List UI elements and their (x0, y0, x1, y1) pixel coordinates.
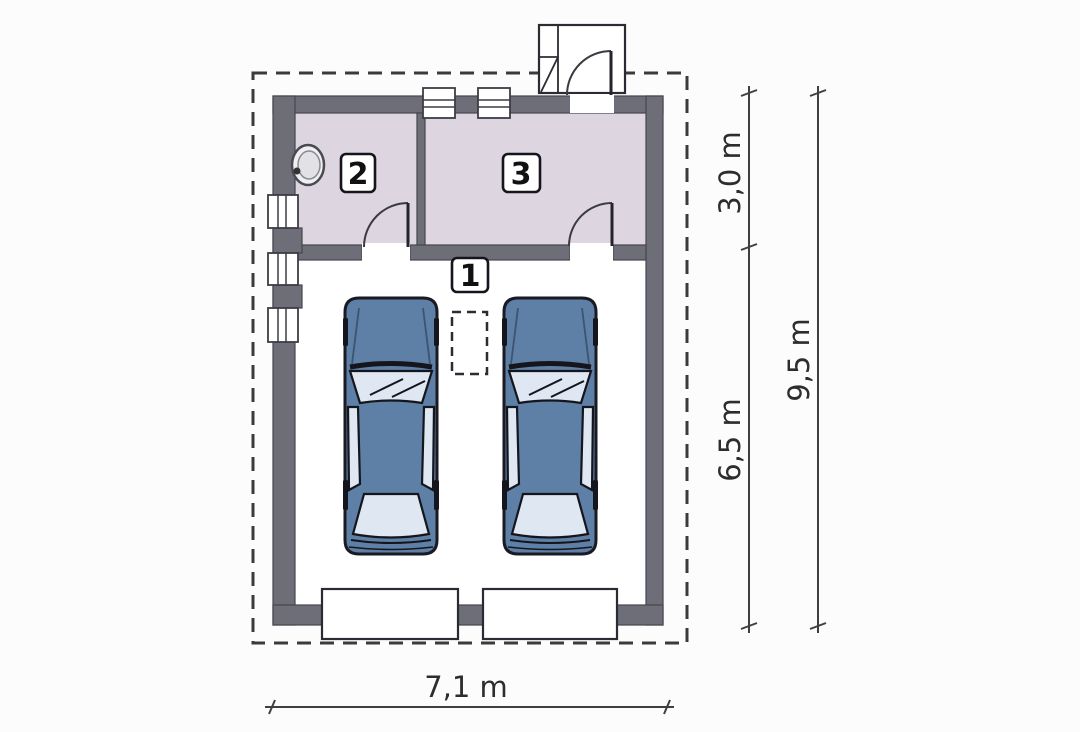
window-left-1 (268, 195, 298, 228)
floor-plan-page: 2 3 1 3,0 m 6,5 m 9,5 m 7,1 m (0, 0, 1080, 732)
wall-room2-garage (295, 245, 362, 260)
window-frame (423, 88, 455, 118)
wall-rooms-garage-middle (410, 245, 570, 260)
dimension-value-garage: 6,5 m (713, 398, 747, 482)
room-label-1: 1 (452, 258, 488, 294)
wall-room2-room3-divider (417, 113, 425, 245)
entrance-door-opening (570, 94, 614, 113)
dimension-value-upper: 3,0 m (713, 131, 747, 215)
room-label-3: 3 (503, 154, 540, 192)
wall-left-pier-2 (273, 285, 302, 308)
wall-left-pier-1 (273, 228, 302, 253)
garage-door-left (322, 589, 458, 639)
window-left-3 (268, 308, 298, 342)
wall-bottom-right (617, 605, 663, 625)
car-left (343, 298, 439, 554)
window-top-2 (478, 88, 510, 118)
window-frame (268, 195, 298, 228)
window-frame (478, 88, 510, 118)
dimension-value-total-width: 7,1 m (424, 670, 508, 704)
car-right (502, 298, 598, 554)
wall-bottom-middle-pier (458, 605, 483, 625)
room-label-number: 1 (460, 259, 481, 294)
window-left-2 (268, 253, 298, 285)
room-label-number: 2 (348, 157, 369, 192)
washbasin-drain (294, 168, 301, 175)
wall-room3-garage-right (613, 245, 646, 260)
dimension-value-total-depth: 9,5 m (782, 318, 816, 402)
window-top-1 (423, 88, 455, 118)
wall-bottom-left (273, 605, 322, 625)
window-frame (268, 253, 298, 285)
room3-door-opening (570, 243, 613, 262)
washbasin-bowl (298, 151, 320, 179)
wall-left (273, 96, 295, 625)
room2-door-opening (362, 243, 410, 262)
wall-right (646, 96, 663, 625)
window-frame (268, 308, 298, 342)
room-label-2: 2 (341, 154, 375, 192)
washbasin-icon (292, 145, 324, 185)
room-label-number: 3 (511, 157, 532, 192)
garage-door-right (483, 589, 617, 639)
floor-plan-drawing: 2 3 1 3,0 m 6,5 m 9,5 m 7,1 m (0, 0, 1080, 732)
